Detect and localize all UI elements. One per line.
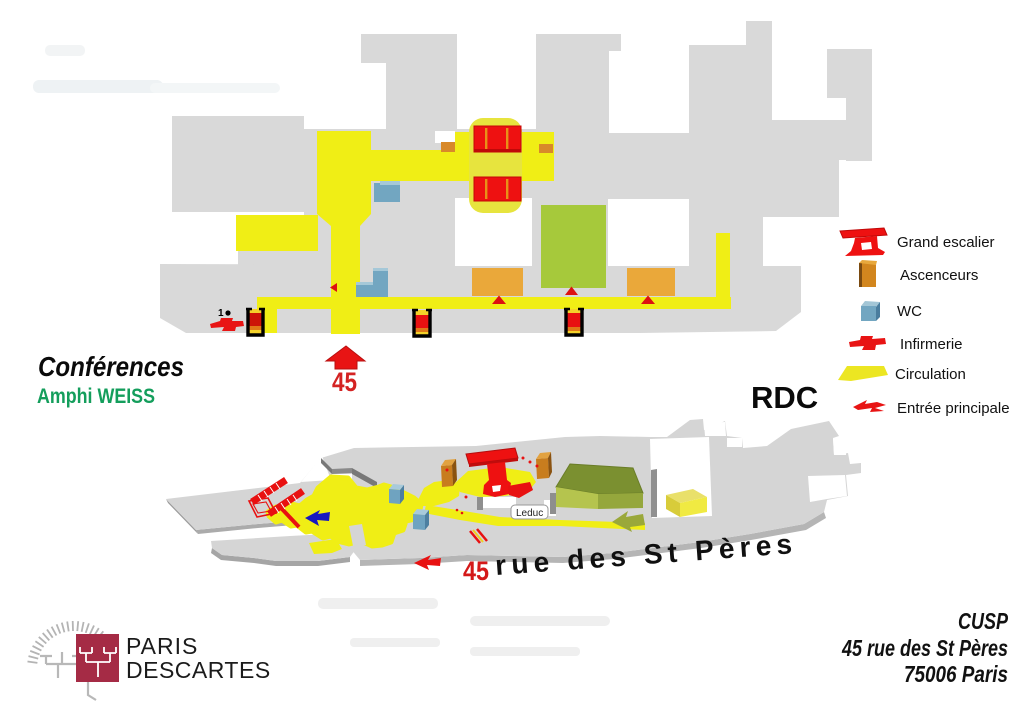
svg-text:Conférences: Conférences xyxy=(38,351,184,382)
svg-text:DESCARTES: DESCARTES xyxy=(126,657,271,683)
svg-text:RDC: RDC xyxy=(751,380,818,415)
svg-text:WC: WC xyxy=(897,303,922,320)
svg-text:Amphi WEISS: Amphi WEISS xyxy=(37,385,155,408)
svg-text:45 rue des St Pères: 45 rue des St Pères xyxy=(841,635,1008,661)
svg-text:CUSP: CUSP xyxy=(958,608,1009,634)
svg-text:75006 Paris: 75006 Paris xyxy=(904,661,1008,687)
svg-text:45: 45 xyxy=(463,556,489,586)
svg-text:1: 1 xyxy=(218,308,224,319)
svg-text:Leduc: Leduc xyxy=(516,508,543,519)
svg-text:Ascenceurs: Ascenceurs xyxy=(900,267,978,284)
svg-text:45: 45 xyxy=(332,367,357,397)
svg-text:Circulation: Circulation xyxy=(895,366,966,383)
svg-text:Infirmerie: Infirmerie xyxy=(900,336,963,353)
svg-text:Grand escalier: Grand escalier xyxy=(897,234,995,251)
svg-text:PARIS: PARIS xyxy=(126,633,198,659)
svg-text:Entrée principale: Entrée principale xyxy=(897,400,1010,417)
